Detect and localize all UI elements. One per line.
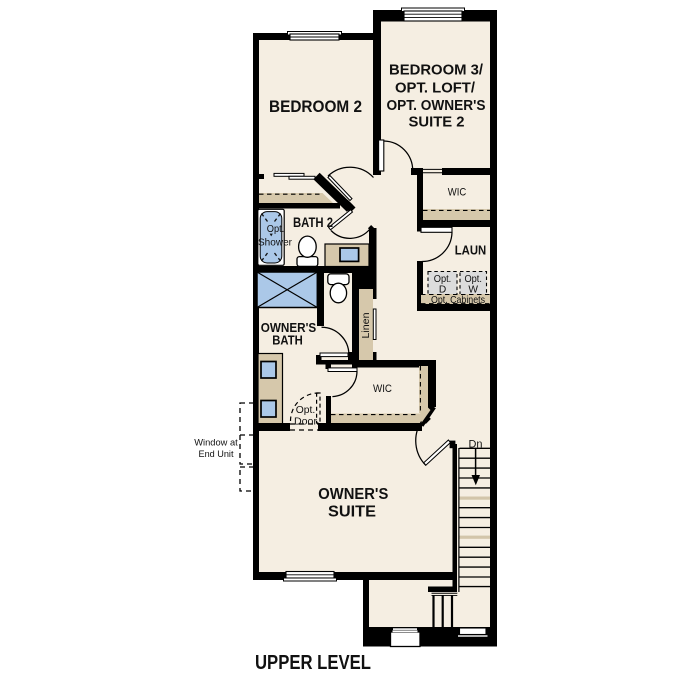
svg-text:Dn: Dn <box>469 439 483 451</box>
svg-text:Opt.: Opt. <box>464 274 482 285</box>
svg-text:WIC: WIC <box>373 383 392 395</box>
svg-text:Door: Door <box>294 417 318 428</box>
svg-text:Shower: Shower <box>258 238 293 249</box>
svg-text:OWNER'S: OWNER'S <box>318 486 388 503</box>
svg-text:Opt.: Opt. <box>267 224 285 235</box>
svg-text:BEDROOM 3/: BEDROOM 3/ <box>389 63 483 79</box>
svg-text:BATH 2: BATH 2 <box>293 215 333 230</box>
svg-text:SUITE 2: SUITE 2 <box>409 115 465 131</box>
svg-text:WIC: WIC <box>448 187 467 199</box>
svg-text:Opt.: Opt. <box>434 274 452 285</box>
svg-text:OPT. OWNER'S: OPT. OWNER'S <box>387 98 486 114</box>
svg-text:Window at: Window at <box>194 438 238 449</box>
svg-text:SUITE: SUITE <box>328 504 376 521</box>
svg-text:Linen: Linen <box>361 313 372 339</box>
svg-text:BATH: BATH <box>272 334 303 348</box>
svg-text:BEDROOM 2: BEDROOM 2 <box>269 98 362 116</box>
svg-text:Opt.: Opt. <box>296 405 316 416</box>
svg-text:OPT. LOFT/: OPT. LOFT/ <box>395 81 475 97</box>
svg-text:UPPER LEVEL: UPPER LEVEL <box>255 652 371 674</box>
svg-text:Opt. Cabinets: Opt. Cabinets <box>431 295 485 306</box>
svg-text:LAUN: LAUN <box>455 243 487 258</box>
svg-text:End Unit: End Unit <box>199 449 234 460</box>
